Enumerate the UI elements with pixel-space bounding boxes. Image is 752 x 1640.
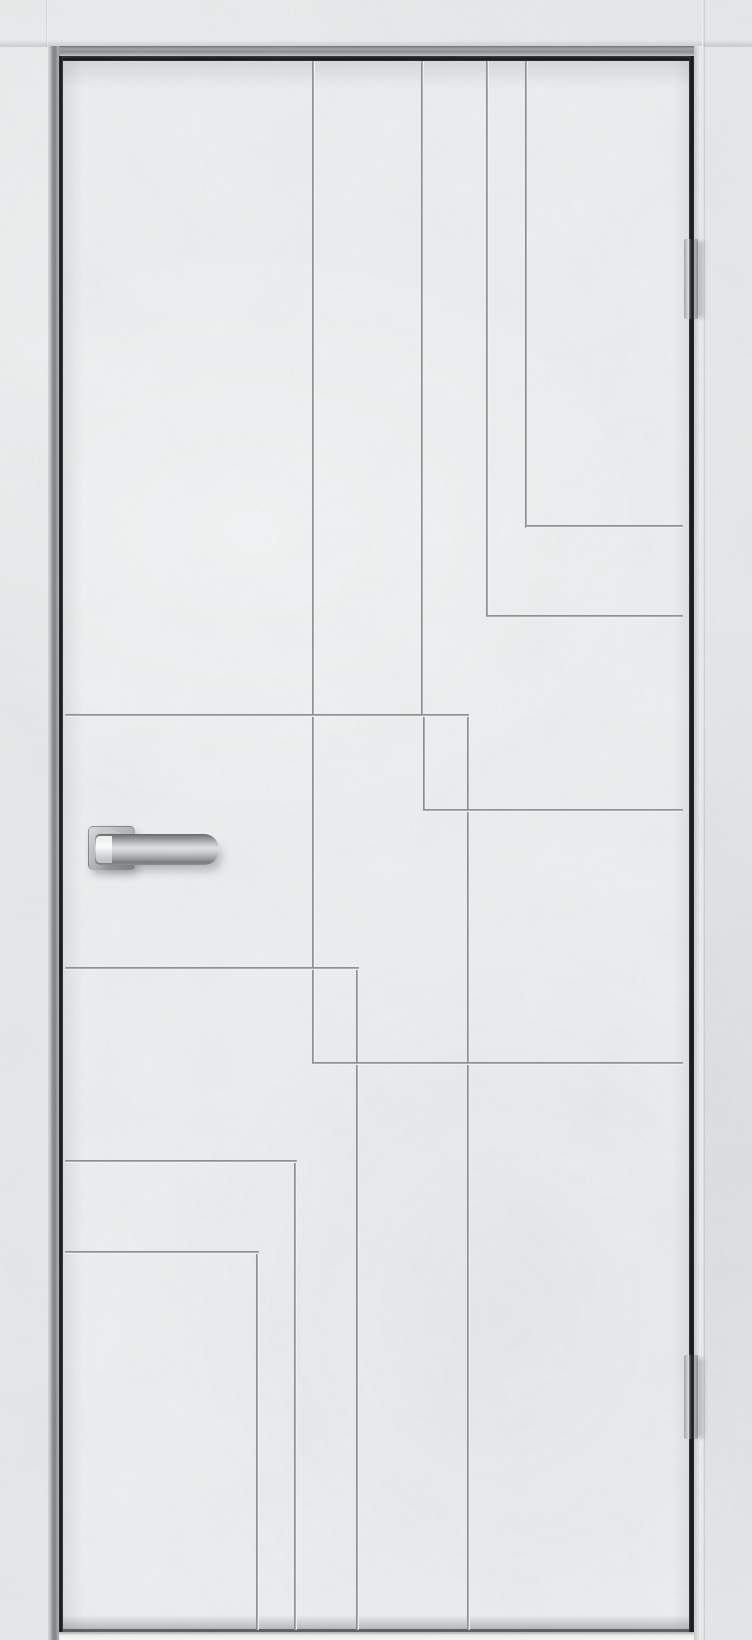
door-gap-left — [59, 56, 63, 1634]
groove-segment — [467, 716, 470, 1630]
groove-segment — [423, 716, 426, 811]
floor-strip — [59, 1632, 694, 1640]
groove-segment — [65, 1251, 259, 1254]
groove-segment — [421, 61, 424, 717]
lever-neck-highlight — [96, 836, 112, 863]
groove-segment — [65, 714, 469, 717]
groove-segment — [65, 1160, 297, 1163]
handle-lever — [95, 834, 219, 865]
groove-segment — [487, 615, 683, 618]
groove-segment — [294, 1161, 297, 1630]
door-gap-top — [59, 56, 694, 61]
groove-segment — [526, 525, 683, 528]
hinge-bottom — [684, 1355, 698, 1439]
groove-segment — [256, 1252, 259, 1630]
groove-segment — [356, 968, 359, 1630]
groove-segment — [486, 61, 489, 617]
groove-segment — [313, 1062, 683, 1065]
groove-segment — [312, 61, 315, 1064]
hinge-top — [684, 239, 698, 319]
groove-segment — [525, 61, 528, 528]
groove-segment — [65, 967, 359, 970]
door-photo-scene — [0, 0, 752, 1640]
groove-segment — [424, 809, 683, 812]
wall-joint-left — [46, 0, 48, 46]
